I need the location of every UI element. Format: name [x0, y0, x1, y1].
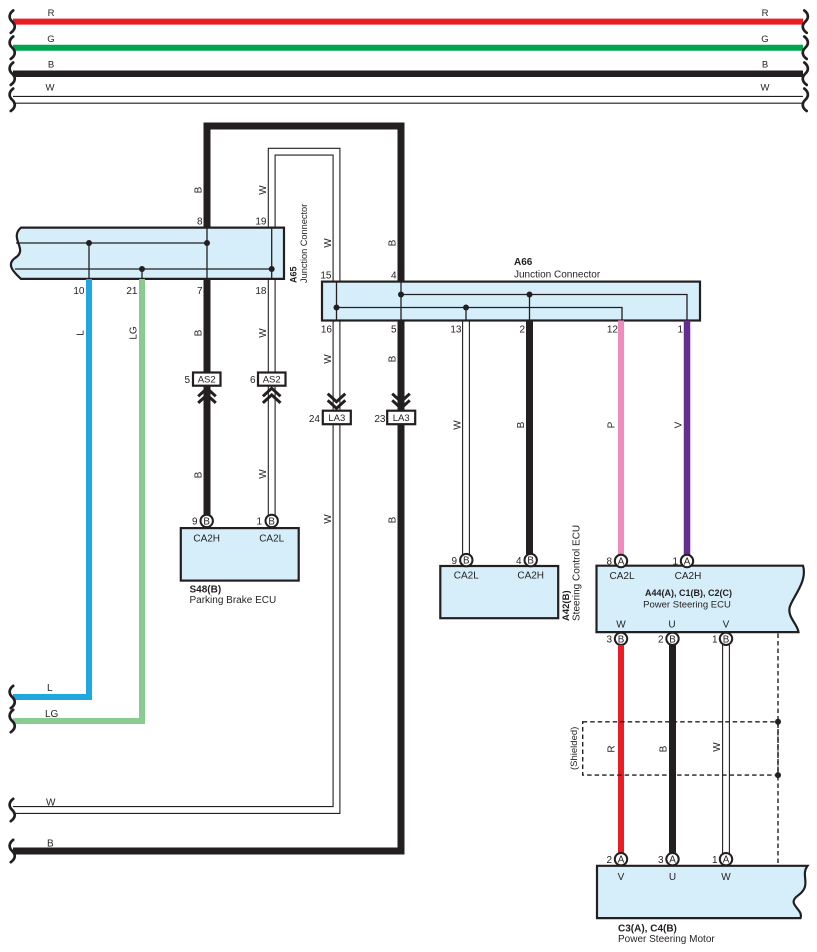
svg-text:A: A	[684, 557, 691, 568]
svg-text:Steering Control ECU: Steering Control ECU	[572, 525, 583, 621]
svg-text:R: R	[762, 8, 769, 19]
svg-text:W: W	[258, 185, 269, 195]
svg-text:CA2H: CA2H	[517, 571, 544, 582]
svg-text:AS2: AS2	[263, 375, 281, 386]
svg-text:CA2H: CA2H	[193, 534, 220, 545]
svg-text:W: W	[453, 420, 464, 430]
svg-text:U: U	[668, 619, 675, 630]
svg-text:CA2L: CA2L	[454, 571, 479, 582]
svg-text:1: 1	[677, 325, 683, 336]
svg-text:Power Steering ECU: Power Steering ECU	[643, 599, 731, 610]
svg-text:8: 8	[606, 557, 612, 568]
svg-text:10: 10	[73, 286, 85, 297]
svg-text:W: W	[721, 872, 731, 883]
svg-text:W: W	[712, 742, 723, 752]
svg-text:B: B	[516, 421, 527, 428]
svg-text:2: 2	[519, 325, 525, 336]
svg-text:B: B	[388, 239, 399, 246]
svg-text:U: U	[669, 872, 676, 883]
svg-text:P: P	[607, 421, 618, 428]
svg-text:LA3: LA3	[393, 413, 410, 424]
svg-text:A: A	[669, 855, 676, 866]
svg-text:W: W	[258, 328, 269, 338]
svg-text:G: G	[47, 34, 54, 45]
svg-text:AS2: AS2	[198, 375, 216, 386]
svg-text:5: 5	[391, 325, 397, 336]
svg-text:LG: LG	[45, 709, 59, 720]
svg-text:W: W	[616, 619, 626, 630]
svg-text:LA3: LA3	[328, 413, 345, 424]
svg-text:2: 2	[658, 635, 664, 646]
svg-text:Parking Brake ECU: Parking Brake ECU	[190, 595, 277, 606]
svg-text:23: 23	[374, 414, 386, 425]
svg-text:Power Steering Motor: Power Steering Motor	[618, 934, 715, 945]
svg-text:12: 12	[607, 325, 619, 336]
svg-text:B: B	[48, 59, 54, 70]
svg-text:4: 4	[391, 271, 397, 282]
svg-text:15: 15	[320, 271, 332, 282]
svg-text:A42(B): A42(B)	[561, 590, 572, 621]
svg-text:3: 3	[606, 635, 612, 646]
svg-text:B: B	[388, 516, 399, 523]
svg-text:V: V	[618, 872, 625, 883]
svg-text:W: W	[323, 514, 334, 524]
svg-text:L: L	[76, 330, 87, 336]
svg-text:B: B	[659, 745, 670, 752]
svg-text:(Shielded): (Shielded)	[569, 727, 580, 770]
svg-text:B: B	[268, 516, 275, 527]
svg-text:CA2H: CA2H	[675, 571, 702, 582]
svg-text:21: 21	[126, 286, 138, 297]
svg-text:W: W	[761, 83, 770, 94]
svg-text:B: B	[669, 634, 676, 645]
svg-text:8: 8	[197, 217, 203, 228]
svg-text:W: W	[46, 798, 56, 809]
svg-text:13: 13	[450, 325, 462, 336]
svg-text:B: B	[194, 329, 205, 336]
svg-text:L: L	[47, 683, 53, 694]
svg-text:3: 3	[658, 855, 664, 866]
svg-text:18: 18	[255, 286, 267, 297]
svg-text:5: 5	[184, 375, 190, 386]
svg-text:B: B	[527, 556, 534, 567]
svg-text:R: R	[48, 8, 55, 19]
svg-text:24: 24	[309, 414, 321, 425]
svg-text:Junction Connector: Junction Connector	[514, 270, 601, 281]
svg-text:16: 16	[321, 325, 333, 336]
svg-text:B: B	[723, 634, 730, 645]
svg-text:9: 9	[192, 517, 198, 528]
svg-text:B: B	[194, 471, 205, 478]
svg-text:4: 4	[516, 556, 522, 567]
svg-text:1: 1	[712, 855, 718, 866]
svg-text:2: 2	[606, 855, 612, 866]
svg-text:19: 19	[255, 217, 267, 228]
svg-text:A66: A66	[514, 257, 533, 268]
svg-text:9: 9	[451, 556, 457, 567]
svg-text:B: B	[762, 59, 768, 70]
svg-text:W: W	[46, 83, 55, 94]
svg-text:CA2L: CA2L	[609, 571, 634, 582]
svg-text:A: A	[723, 855, 730, 866]
svg-text:B: B	[388, 355, 399, 362]
svg-text:B: B	[47, 839, 54, 850]
svg-text:7: 7	[197, 286, 203, 297]
svg-text:A: A	[618, 557, 625, 568]
svg-text:B: B	[203, 516, 210, 527]
svg-text:A65: A65	[289, 266, 299, 283]
svg-text:W: W	[323, 354, 334, 364]
svg-text:V: V	[723, 619, 730, 630]
svg-text:A44(A), C1(B), C2(C): A44(A), C1(B), C2(C)	[645, 588, 732, 598]
svg-text:A: A	[618, 855, 625, 866]
svg-text:CA2L: CA2L	[259, 534, 284, 545]
svg-text:1: 1	[672, 557, 678, 568]
svg-text:6: 6	[250, 375, 256, 386]
svg-text:B: B	[618, 634, 625, 645]
svg-text:1: 1	[712, 635, 718, 646]
svg-text:W: W	[323, 238, 334, 248]
svg-text:LG: LG	[129, 326, 140, 340]
svg-text:V: V	[674, 421, 685, 428]
svg-text:B: B	[463, 556, 470, 567]
svg-text:G: G	[761, 34, 768, 45]
svg-text:W: W	[258, 469, 269, 479]
svg-text:B: B	[194, 186, 205, 193]
svg-text:Junction Connector: Junction Connector	[299, 204, 309, 283]
svg-text:1: 1	[256, 517, 262, 528]
svg-text:R: R	[607, 745, 618, 752]
